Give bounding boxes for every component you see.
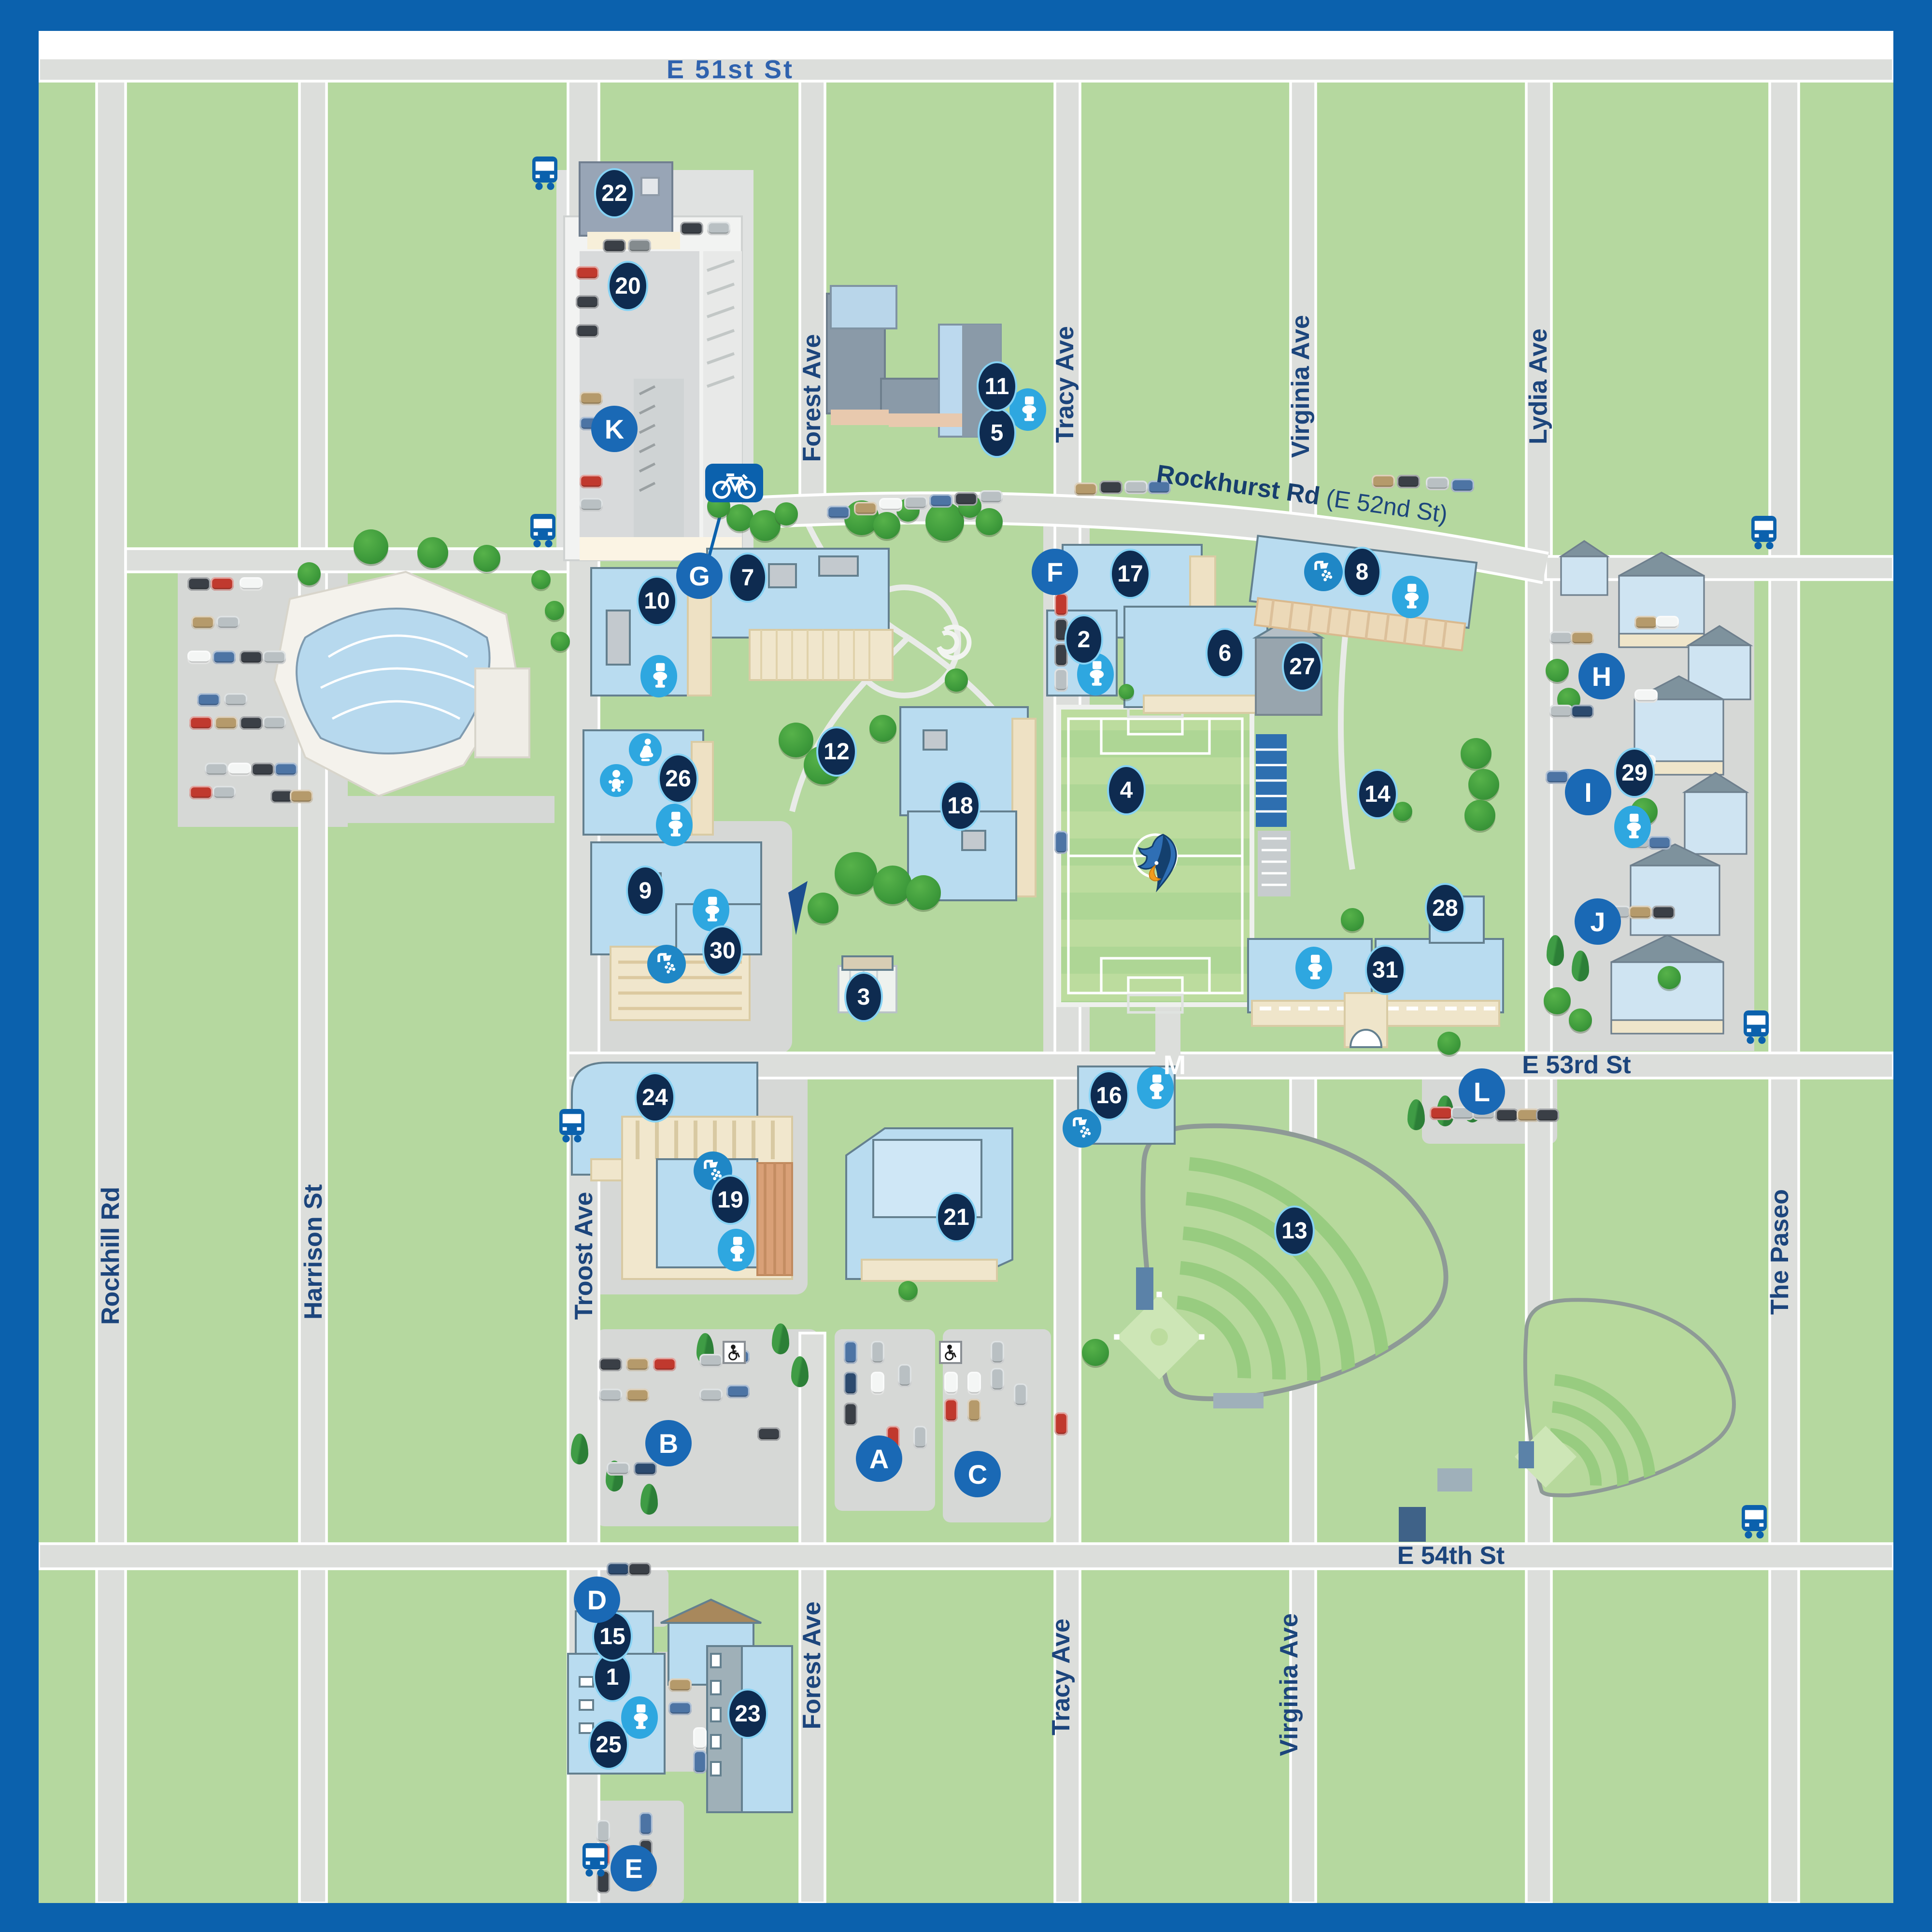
street-label-forest-ave: Forest Ave [797, 1602, 826, 1730]
street-label-tracy-ave: Tracy Ave [1046, 1619, 1075, 1735]
street-label-rockhurst-rd: Rockhurst Rd (E 52nd St) [1155, 459, 1449, 528]
map-border-right [1893, 0, 1932, 1932]
street-label-e-51st-st: E 51st St [667, 55, 794, 84]
map-border-top [0, 0, 1932, 31]
street-label-e-54th-st: E 54th St [1397, 1541, 1505, 1570]
street-label-rockhill-rd: Rockhill Rd [96, 1187, 125, 1325]
street-label-virginia-ave: Virginia Ave [1274, 1613, 1303, 1756]
street-label-harrison-st: Harrison St [298, 1184, 327, 1320]
campus-map: 1234567891011121314151617181920212223242… [0, 0, 1932, 1932]
street-label-virginia-ave: Virginia Ave [1286, 315, 1315, 458]
street-label-troost-ave: Troost Ave [569, 1192, 598, 1320]
road-label-m: M [1164, 1049, 1186, 1080]
map-border-left [0, 0, 39, 1932]
street-labels-layer: E 51st StE 53rd StE 54th StRockhill RdHa… [0, 0, 1932, 1932]
street-label-tracy-ave: Tracy Ave [1050, 326, 1079, 443]
street-label-lydia-ave: Lydia Ave [1523, 328, 1552, 444]
map-border-bottom [0, 1903, 1932, 1932]
street-label-the-paseo: The Paseo [1765, 1189, 1794, 1315]
street-label-forest-ave: Forest Ave [797, 334, 826, 462]
street-label-e-53rd-st: E 53rd St [1522, 1050, 1631, 1079]
